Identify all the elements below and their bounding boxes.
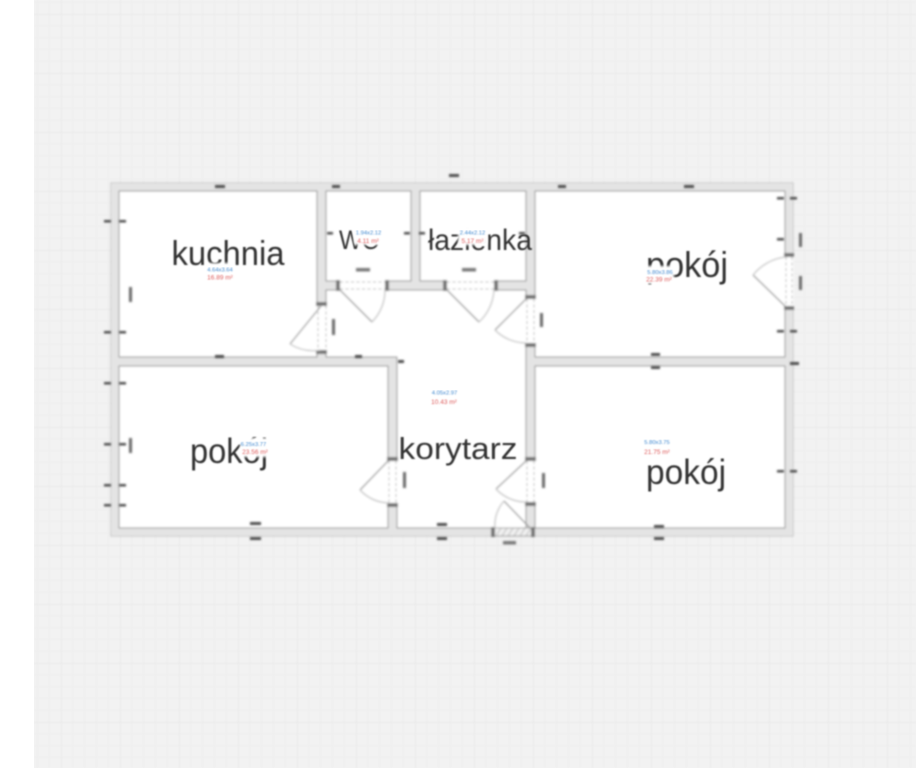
svg-text:pokój: pokój (646, 453, 726, 492)
svg-text:4.64x3.64: 4.64x3.64 (207, 268, 233, 274)
svg-text:21.75 m²: 21.75 m² (644, 449, 670, 456)
svg-text:korytarz: korytarz (399, 431, 518, 466)
svg-text:22.39 m²: 22.39 m² (646, 277, 672, 284)
svg-text:4.11 m²: 4.11 m² (357, 238, 379, 245)
svg-text:1.94x2.12: 1.94x2.12 (356, 231, 381, 237)
svg-text:2.44x2.12: 2.44x2.12 (460, 231, 485, 237)
svg-text:16.89 m²: 16.89 m² (207, 275, 233, 282)
svg-text:6.25x3.77: 6.25x3.77 (241, 442, 266, 448)
svg-text:10.43 m²: 10.43 m² (431, 399, 457, 406)
svg-text:23.56 m²: 23.56 m² (242, 449, 268, 456)
svg-text:5.80x3.86: 5.80x3.86 (647, 270, 672, 276)
svg-text:5.17 m²: 5.17 m² (461, 238, 484, 245)
svg-text:4.05x2.97: 4.05x2.97 (432, 391, 457, 397)
svg-text:5.80x3.75: 5.80x3.75 (644, 440, 669, 446)
